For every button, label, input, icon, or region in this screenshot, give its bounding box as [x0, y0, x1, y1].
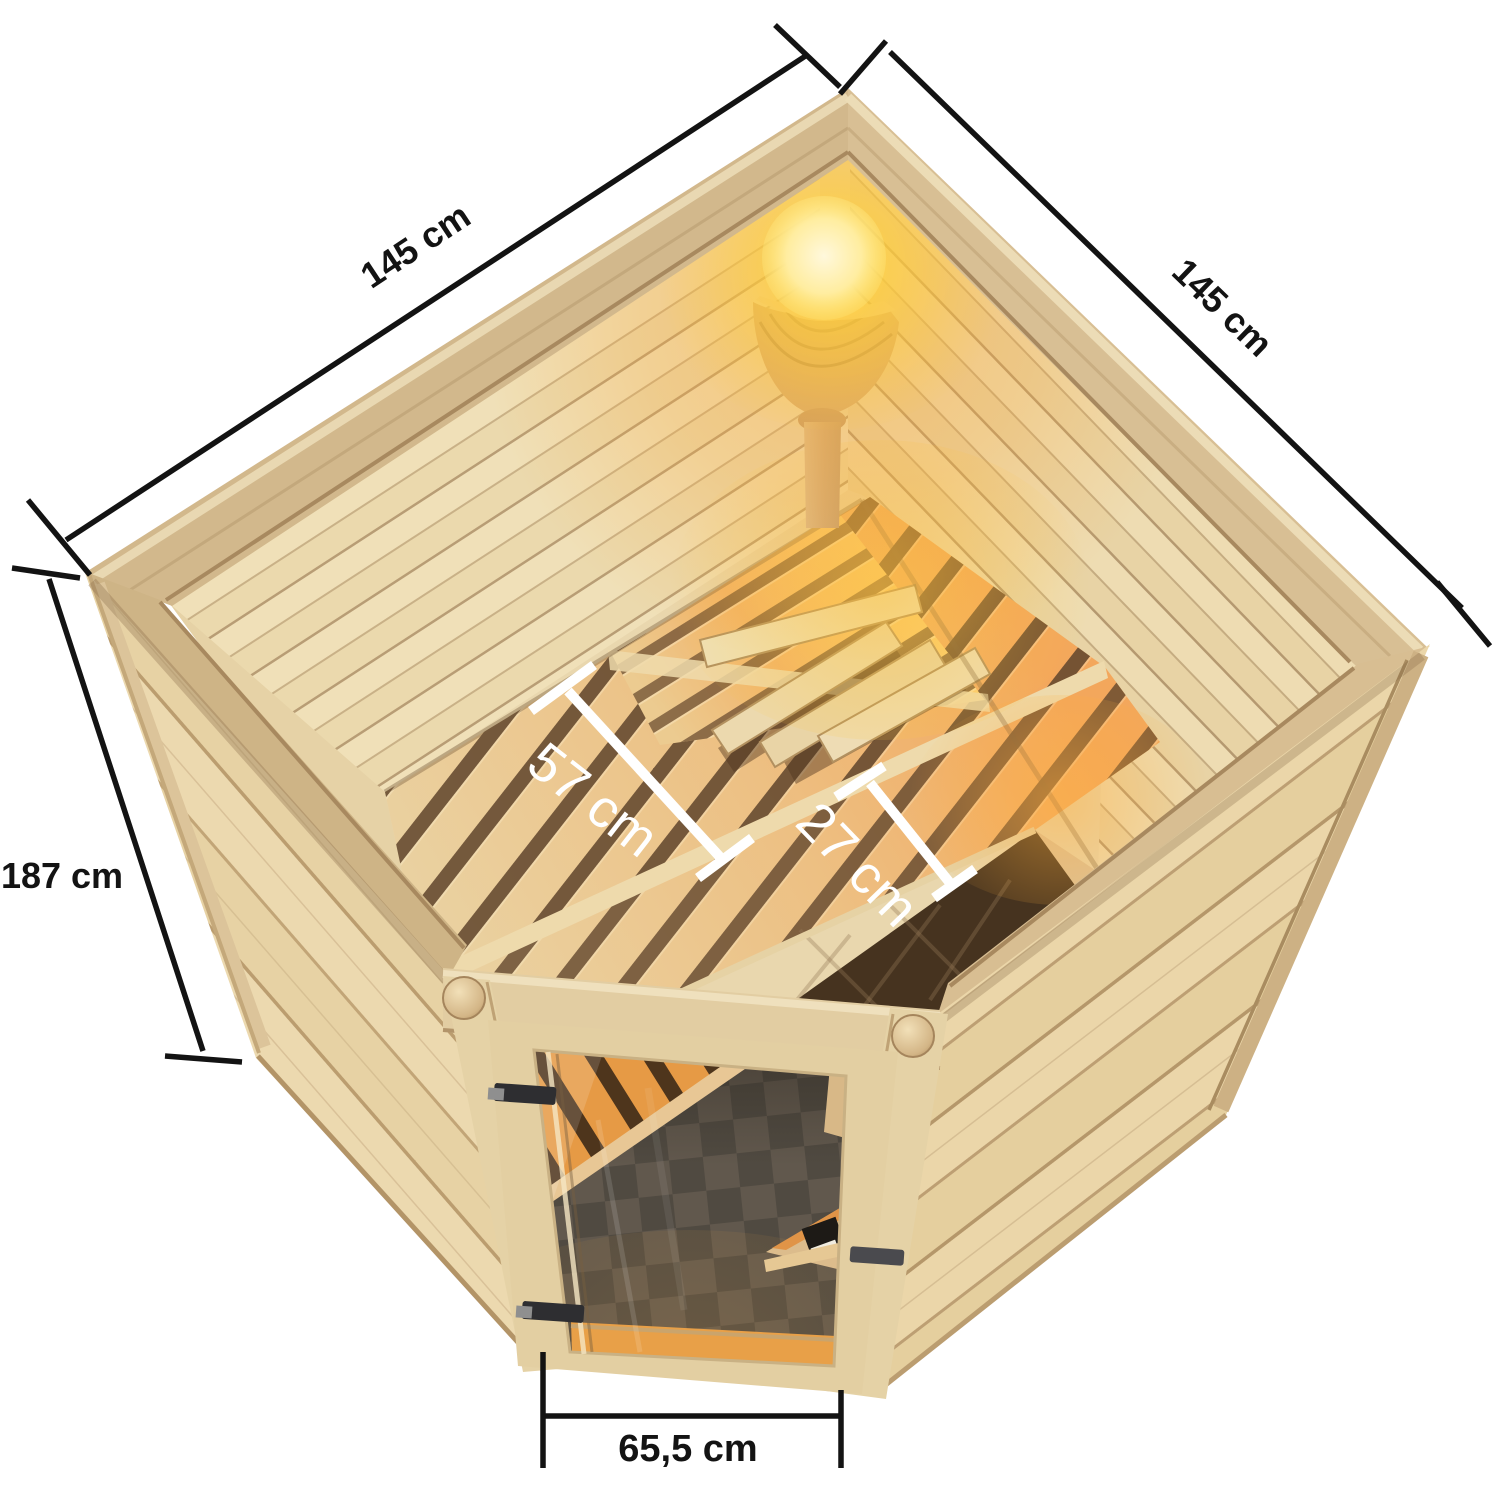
- svg-text:65,5 cm: 65,5 cm: [618, 1428, 757, 1470]
- svg-text:187 cm: 187 cm: [1, 855, 123, 896]
- svg-text:145 cm: 145 cm: [1164, 250, 1280, 364]
